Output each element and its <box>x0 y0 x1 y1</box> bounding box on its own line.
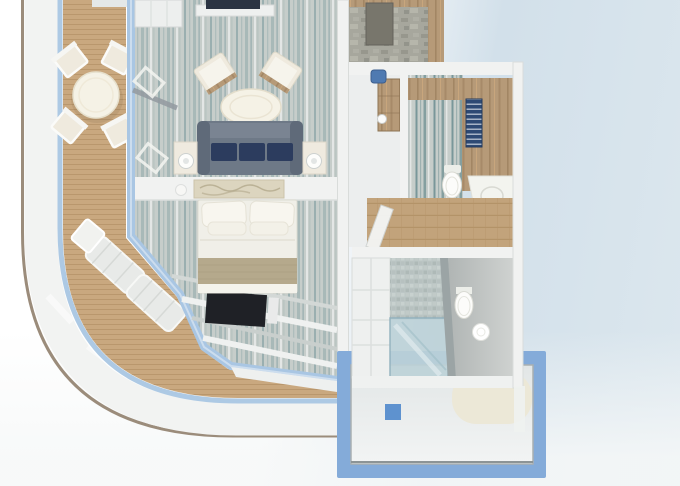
balcony-round-table <box>73 72 119 118</box>
suite-right-outer-wall <box>513 62 523 388</box>
cabin-right-wall <box>338 0 349 385</box>
sofa-arm <box>197 121 210 175</box>
cup <box>378 115 387 124</box>
toilet-bowl <box>443 172 462 198</box>
toilet-lower <box>455 287 473 319</box>
outer-wall-lower-extension <box>514 386 525 432</box>
bath-gray-floor <box>448 258 513 380</box>
side-table-left <box>174 142 197 174</box>
side-table-right <box>303 142 326 174</box>
bedroom <box>198 200 297 293</box>
lamp-center <box>311 158 317 164</box>
console-partition <box>135 177 339 200</box>
bed-runner <box>198 258 297 284</box>
sofa-group <box>197 121 303 175</box>
bath-bottom-wall <box>352 376 513 388</box>
entry-bench <box>366 3 393 45</box>
living-tv <box>206 0 260 9</box>
entry-oak-wall <box>428 0 444 64</box>
blue-stool <box>371 70 386 83</box>
pillow <box>250 222 288 235</box>
lamp-center <box>183 158 189 164</box>
entry-hall <box>349 0 522 75</box>
render-canvas <box>0 0 680 486</box>
sofa-cushion <box>211 143 237 161</box>
sofa-back <box>200 123 300 138</box>
pillow <box>208 222 246 235</box>
tv-side-panel <box>267 297 279 324</box>
bathroom-lower <box>352 258 513 388</box>
toilet-upper <box>443 165 462 198</box>
sofa-cushion <box>239 143 265 161</box>
round-sink <box>473 324 490 341</box>
sofa-cushion <box>267 143 293 161</box>
bed-foot <box>198 284 297 293</box>
drain-square <box>385 404 401 420</box>
suite-floorplan-render <box>0 0 680 486</box>
console-cup <box>176 185 187 196</box>
bath-divider-wall <box>352 247 522 258</box>
white-cabinet <box>135 0 182 27</box>
shower <box>390 318 448 380</box>
navy-towel-shelf <box>466 99 482 147</box>
